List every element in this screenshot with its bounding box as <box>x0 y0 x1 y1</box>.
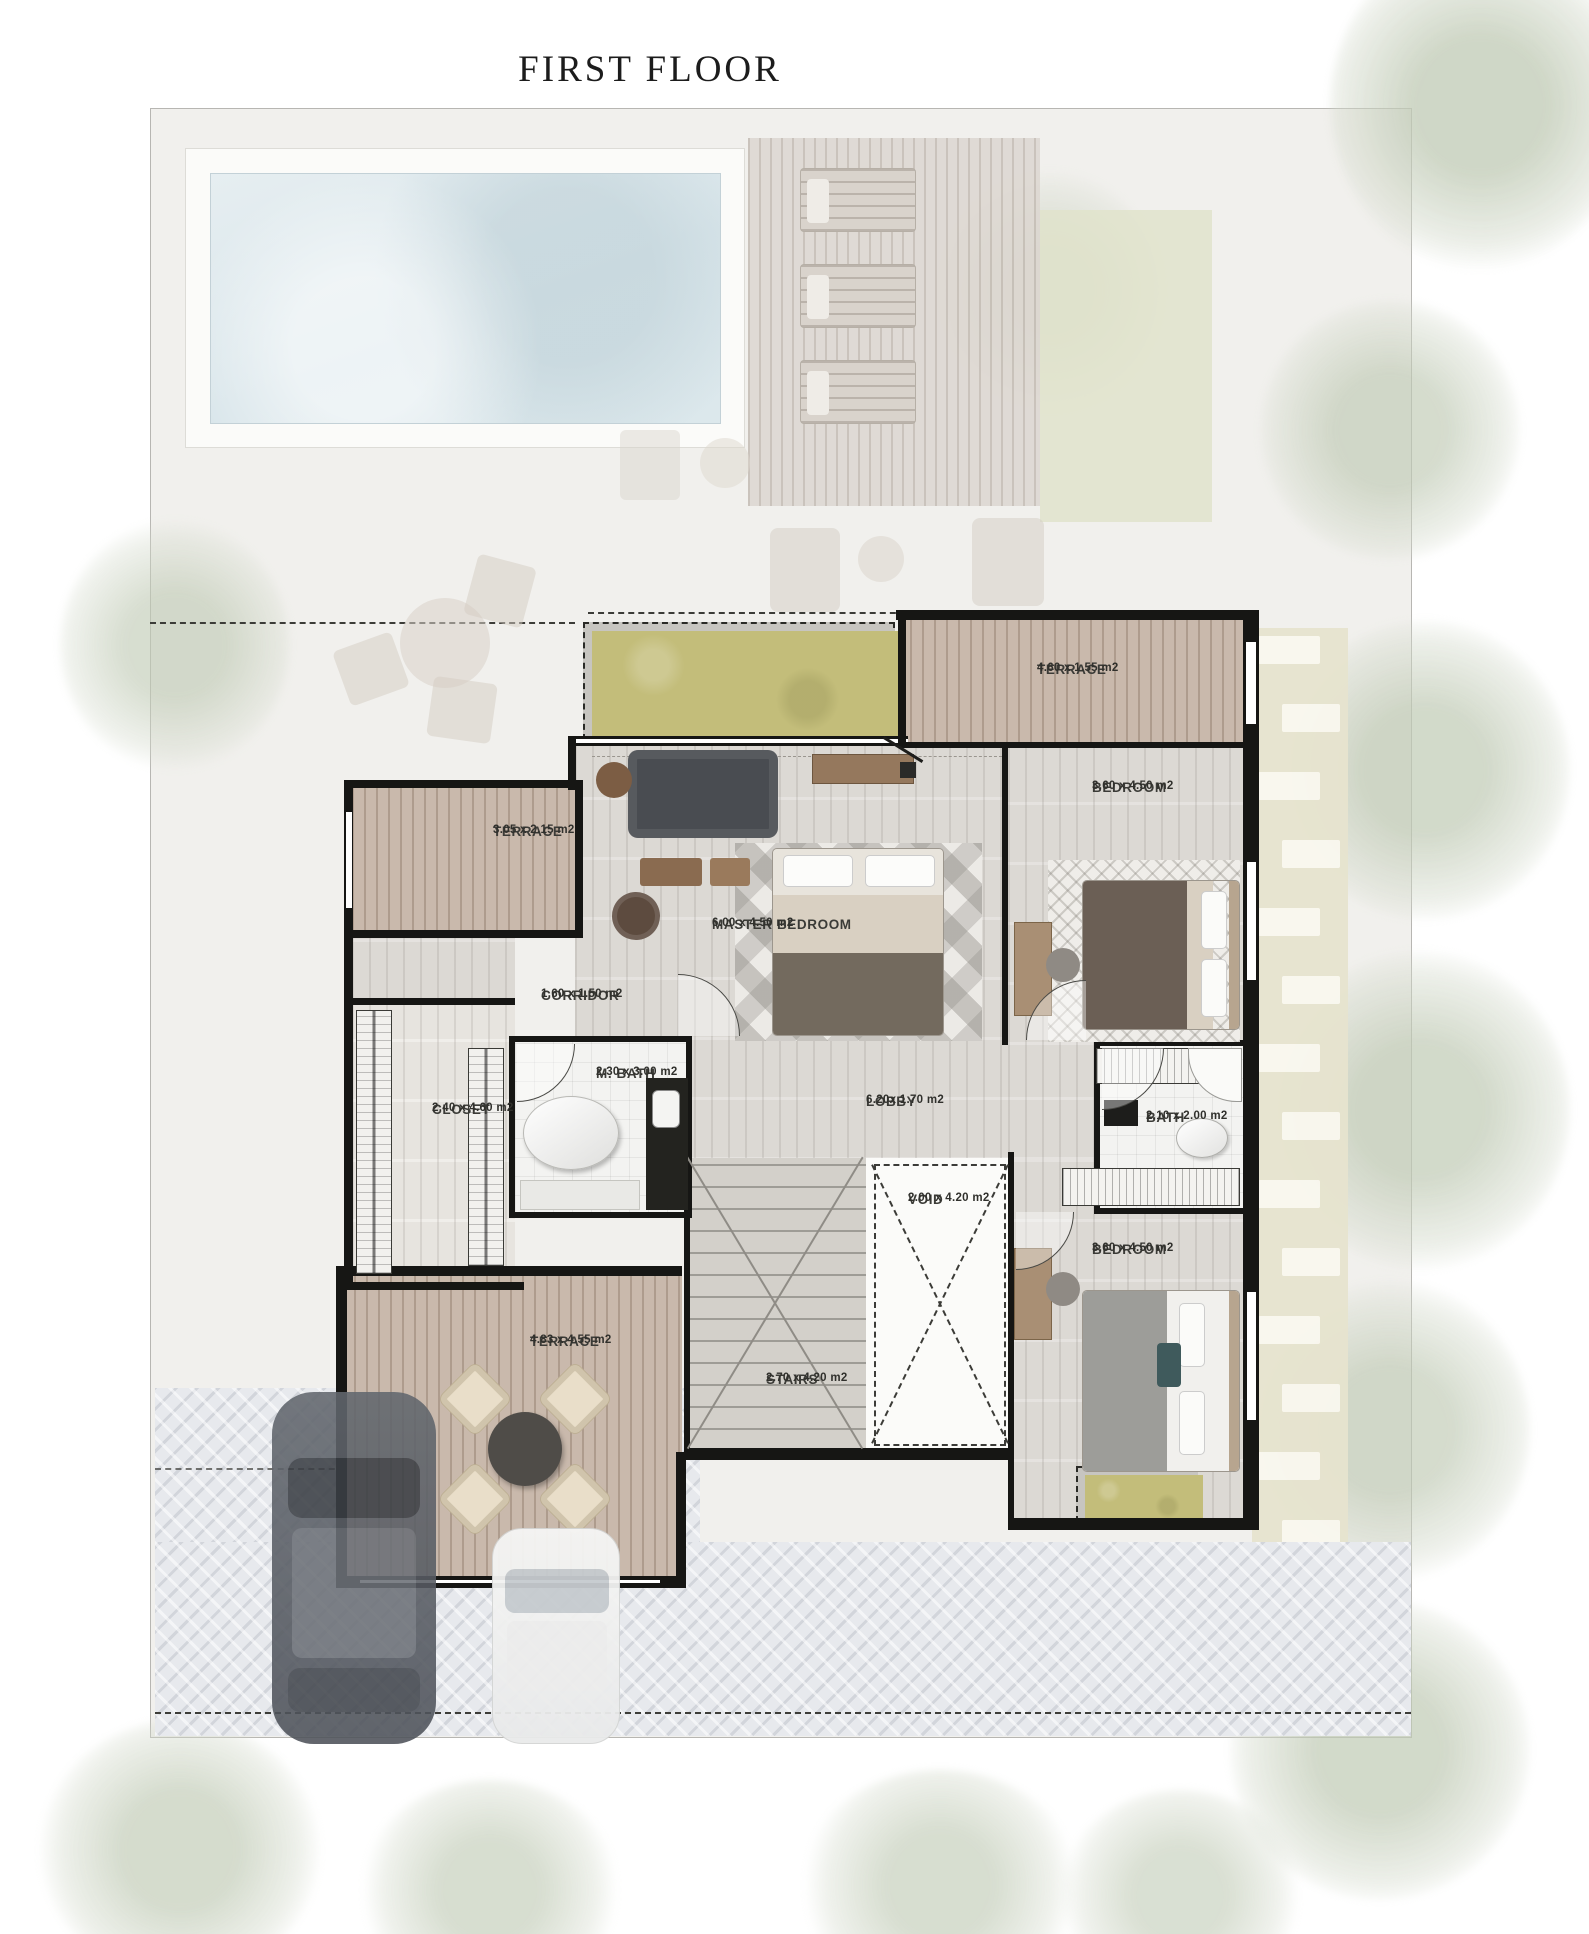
wall <box>676 1452 686 1588</box>
stepping-stone <box>1282 1112 1340 1140</box>
planter-bottom <box>1076 1466 1198 1522</box>
wall <box>1094 1208 1245 1214</box>
lawn <box>1040 210 1212 522</box>
stepping-stone-path <box>1252 628 1348 1638</box>
sun-lounger <box>800 360 916 424</box>
pillow <box>1201 891 1227 949</box>
bedroom-tr-bed <box>1082 880 1240 1030</box>
side-table <box>596 762 632 798</box>
car-rear-window <box>288 1668 420 1712</box>
tree <box>40 1720 320 1934</box>
page-title: FIRST FLOOR <box>400 48 900 91</box>
stepping-stone <box>1258 772 1320 800</box>
wall <box>509 1212 692 1218</box>
patio-side-table <box>700 438 750 488</box>
stepping-stone <box>1258 908 1320 936</box>
patio-chair <box>620 430 680 500</box>
wall <box>344 930 582 938</box>
pillow <box>1179 1303 1205 1367</box>
stepping-stone <box>1282 840 1340 868</box>
wall <box>1243 1048 1259 1214</box>
stepping-stone <box>1258 1044 1320 1072</box>
pillow <box>783 855 853 887</box>
window <box>346 812 352 908</box>
sofa <box>628 750 778 838</box>
pool-deck <box>185 148 745 448</box>
swimming-pool <box>210 173 721 424</box>
wall <box>896 610 1259 620</box>
closet-wardrobe <box>468 1048 504 1266</box>
stepping-stone <box>1282 1248 1340 1276</box>
stepping-stone <box>1258 1452 1320 1480</box>
stepping-stone <box>1258 1316 1320 1344</box>
tree <box>360 1780 620 1934</box>
master-bed <box>772 848 944 1036</box>
wall <box>509 1042 515 1215</box>
headboard <box>1229 1291 1240 1472</box>
glass-wall <box>575 736 908 746</box>
car-windshield <box>288 1458 420 1518</box>
hall-floor <box>352 938 515 1002</box>
bath-bench <box>520 1180 640 1210</box>
wall <box>509 1036 692 1042</box>
sun-lounger <box>800 264 916 328</box>
bed-blanket <box>773 953 944 1036</box>
pillow <box>865 855 935 887</box>
coffee-table <box>710 858 750 886</box>
console-table <box>812 754 914 784</box>
lounger-pillow <box>807 371 829 415</box>
wardrobe-dresser <box>1062 1168 1240 1206</box>
lamp-base <box>900 762 916 778</box>
lobby-floor <box>1008 1045 1100 1160</box>
headboard <box>1229 881 1240 1030</box>
car-roof <box>507 1621 607 1691</box>
planter-grass <box>592 631 900 745</box>
pillow <box>1179 1391 1205 1455</box>
tree <box>1260 300 1520 560</box>
coffee-table <box>640 858 702 886</box>
patio-armchair <box>770 528 840 612</box>
lounger-pillow <box>807 179 829 223</box>
stepping-stone <box>1282 1384 1340 1412</box>
stepping-stone <box>1258 1180 1320 1208</box>
lounger-pillow <box>807 275 829 319</box>
tree <box>60 520 290 770</box>
bedroom-br-bed <box>1082 1290 1240 1472</box>
terrace-left-deck <box>352 786 575 936</box>
wall <box>344 780 582 788</box>
wall <box>684 1448 1014 1460</box>
stepping-stone <box>1282 704 1340 732</box>
bed-blanket <box>1083 1291 1167 1472</box>
terrace-tr-deck <box>898 618 1245 746</box>
sink <box>652 1090 680 1128</box>
outdoor-chair <box>426 676 498 744</box>
bathtub <box>523 1096 619 1170</box>
tree <box>800 1770 1080 1934</box>
planter-top <box>583 622 895 740</box>
wall <box>1008 1518 1259 1530</box>
car-windshield <box>505 1569 609 1613</box>
wall <box>898 742 1245 748</box>
desk-chair <box>1046 1272 1080 1306</box>
stepping-stone <box>1282 976 1340 1004</box>
desk-chair <box>1046 948 1080 982</box>
car-dark <box>272 1392 436 1744</box>
stepping-stone <box>1258 636 1320 664</box>
pillow <box>1201 959 1227 1017</box>
window <box>1247 1292 1256 1420</box>
sun-lounger <box>800 168 916 232</box>
wall <box>1002 746 1008 1045</box>
wall <box>898 618 906 746</box>
wall <box>344 998 515 1005</box>
wall <box>344 938 353 1290</box>
wall <box>575 780 583 938</box>
car-roof <box>292 1528 416 1658</box>
closet-wardrobe <box>356 1010 392 1274</box>
floor-plan: FIRST FLOOR TERRACE 4.60 x 1.55 m2 BEDRO… <box>0 0 1589 1934</box>
bed-blanket <box>1083 881 1187 1030</box>
terrace-round-table <box>488 1412 562 1486</box>
accent-pillow <box>1157 1343 1181 1387</box>
window <box>1246 642 1256 724</box>
patio-side-table <box>858 536 904 582</box>
car-white <box>492 1528 620 1744</box>
wall <box>344 1282 524 1290</box>
patio-armchair <box>972 518 1044 606</box>
window <box>1247 862 1256 980</box>
